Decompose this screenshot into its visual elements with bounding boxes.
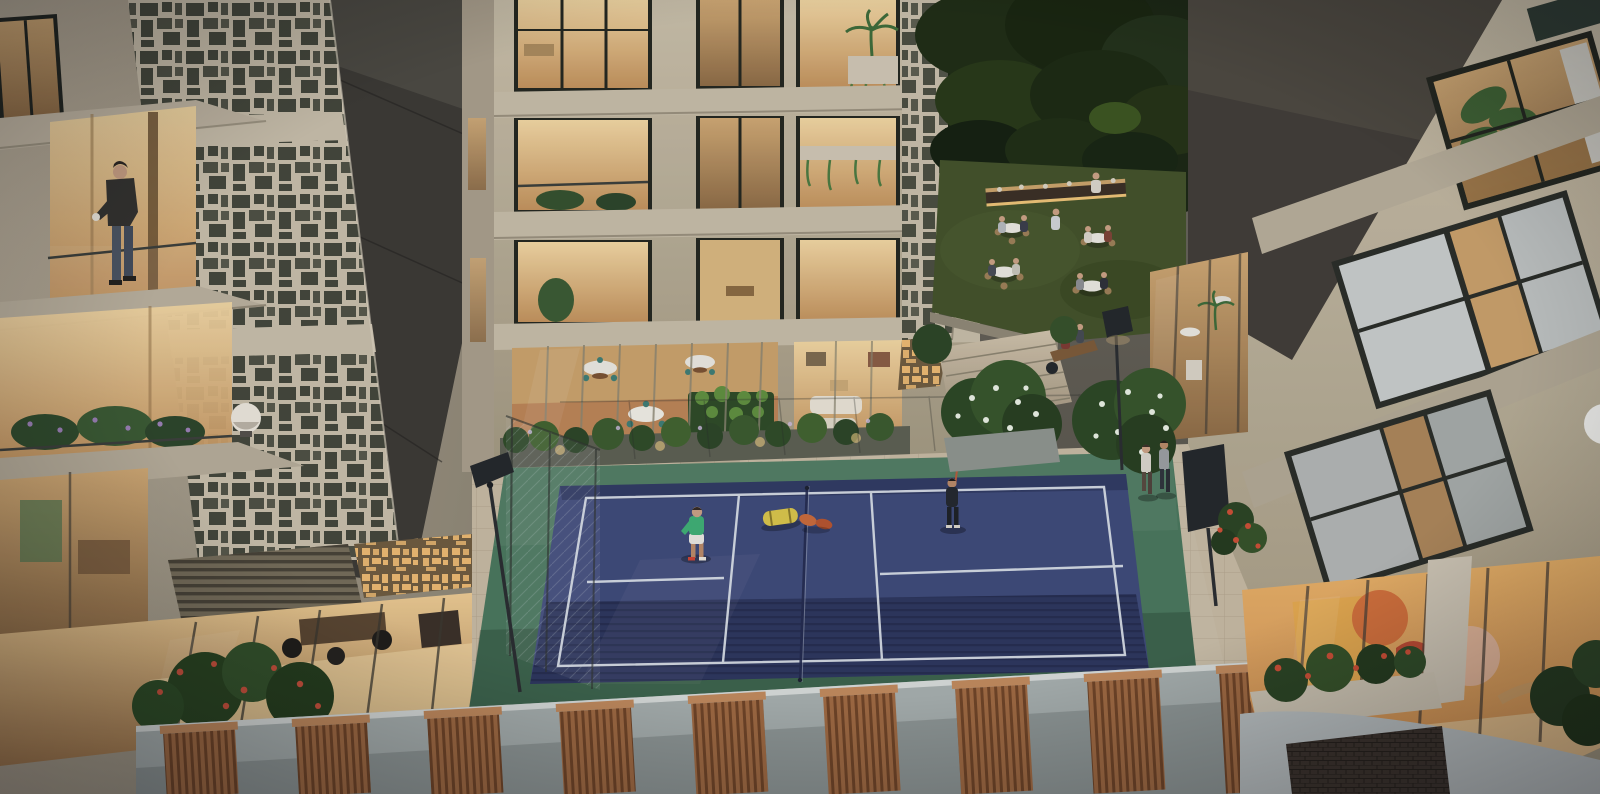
courtyard-render [0, 0, 1600, 794]
vignette-overlay [0, 0, 1600, 794]
architectural-render-stage [0, 0, 1600, 794]
